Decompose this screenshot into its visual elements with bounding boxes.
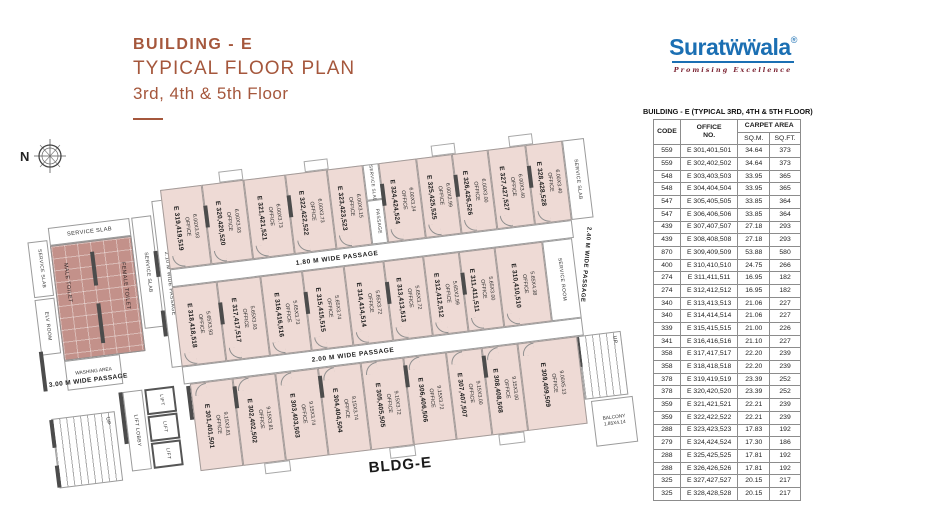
door-arc <box>500 214 513 227</box>
service-slab-label: SERVICE SLAB <box>67 226 113 238</box>
wall-segment <box>90 252 98 286</box>
up-label: UP <box>611 335 618 344</box>
office-label: E 323,423,523OFFICE6.00X3.15 <box>334 183 365 231</box>
passage-label: PASSAGE <box>373 209 382 235</box>
door-arc <box>507 312 520 325</box>
office-label: E 318,418,518OFFICE5.65X3.93 <box>184 300 215 348</box>
lift-room: LIFT <box>147 413 180 442</box>
lift-room: LIFT <box>151 439 184 468</box>
door-arc <box>237 378 250 391</box>
office-label: E 304,404,504OFFICE9.15X3.74 <box>329 385 360 433</box>
lift-room: LIFT <box>144 386 177 415</box>
office-label: E 312,412,512OFFICE5.65X2.99 <box>430 270 461 318</box>
door-arc <box>407 357 420 370</box>
office-label: E 320,420,520OFFICE6.00X3.93 <box>212 198 243 246</box>
office-label: E 310,410,510OFFICE5.65X4.38 <box>508 261 539 309</box>
office-label: E 303,403,503OFFICE9.15X3.74 <box>286 391 317 439</box>
door-arc <box>256 244 269 257</box>
male-toilet-label: MALE TOILET <box>61 263 73 304</box>
office-label: E 327,427,527OFFICE6.00X3.40 <box>496 163 527 211</box>
toilet-block: MALE TOILET FEMALE TOILET <box>50 236 146 361</box>
door-arc <box>272 341 285 354</box>
lift-label: LIFT <box>164 448 171 460</box>
door-arc <box>297 239 310 252</box>
service-slab-label: SERVICE SLAB <box>35 249 46 289</box>
brochure-page: BUILDING - E TYPICAL FLOOR PLAN 3rd, 4th… <box>0 0 945 525</box>
office-label: E 307,407,507OFFICE9.15X3.00 <box>454 370 485 418</box>
office-label: E 309,409,509OFFICE9.00X5.13 <box>537 360 568 408</box>
staircase-left: UP <box>51 411 123 488</box>
office-label: E 306,406,506OFFICE9.15X3.72 <box>414 375 445 423</box>
door-arc <box>464 219 477 232</box>
door-arc <box>471 317 484 330</box>
service-slab-label: SERVICE SLAB <box>142 251 153 292</box>
staircase-right: UP <box>577 331 628 400</box>
lift-label: LIFT <box>157 394 164 406</box>
wall-segment <box>39 351 48 391</box>
office-label: E 322,422,522OFFICE6.00X3.73 <box>295 188 326 236</box>
door-arc <box>365 362 378 375</box>
door-arc <box>486 347 499 360</box>
office-label: E 317,417,517OFFICE5.65X3.93 <box>228 295 259 343</box>
service-slab-label: SERVICE SLAB <box>572 158 583 199</box>
door-arc <box>229 346 242 359</box>
building-outline: SERVICE SLAB MALE TOILET FEMALE TOILET W… <box>21 128 708 525</box>
office-label: E 321,421,521OFFICE6.00X3.73 <box>254 193 285 241</box>
wall-segment <box>55 465 62 487</box>
door-arc <box>390 228 403 241</box>
door-arc <box>395 326 408 339</box>
door-arc <box>184 352 197 365</box>
door-arc <box>339 234 352 247</box>
floor-plan: SERVICE SLAB MALE TOILET FEMALE TOILET W… <box>0 0 945 525</box>
door-arc <box>356 331 369 344</box>
door-arc <box>172 255 185 268</box>
service-slab-label: SERVICE SLAB <box>368 165 378 202</box>
door-arc <box>428 223 441 236</box>
door-arc <box>279 372 292 385</box>
balcony: BALCONY1.85X4.14 <box>591 396 638 447</box>
wall-segment <box>49 420 56 448</box>
office-label: E 319,419,519OFFICE6.00X3.93 <box>170 203 201 251</box>
office-room: E 310,410,510OFFICE5.65X4.38 <box>495 242 552 327</box>
office-label: E 313,413,513OFFICE5.65X3.72 <box>393 275 424 323</box>
office-label: E 305,405,505OFFICE9.15X3.72 <box>372 380 403 428</box>
office-label: E 325,425,525OFFICE6.00X2.99 <box>423 172 454 220</box>
office-label: E 326,426,526OFFICE6.00X3.00 <box>459 168 490 216</box>
female-toilet-label: FEMALE TOILET <box>119 262 132 310</box>
service-room-label: SERVICE ROOM <box>556 258 568 302</box>
office-room: E 309,409,509OFFICE9.00X5.13 <box>517 336 587 431</box>
door-arc <box>537 210 550 223</box>
passage-2-40-label: 2.40 M WIDE PASSAGE <box>579 227 592 303</box>
door-arc <box>450 351 463 364</box>
door-arc <box>521 343 534 356</box>
office-label: E 302,402,502OFFICE9.15X3.81 <box>244 396 275 444</box>
lift-label: LIFT <box>160 421 167 433</box>
office-label: E 311,411,511OFFICE5.65X3.00 <box>466 266 497 313</box>
door-arc <box>322 367 335 380</box>
lift-lobby-label: LIFT LOBBY <box>132 414 142 447</box>
office-label: E 316,416,516OFFICE5.65X3.73 <box>271 290 302 338</box>
wall-segment <box>96 303 105 343</box>
office-label: E 324,424,524OFFICE6.00X3.24 <box>387 177 418 225</box>
office-label: E 314,414,514OFFICE5.65X3.72 <box>353 280 384 328</box>
office-label: E 315,415,515OFFICE5.65X3.74 <box>312 285 343 333</box>
up-label: UP <box>104 417 111 426</box>
office-label: E 308,408,508OFFICE9.15X3.00 <box>489 366 520 414</box>
door-arc <box>214 249 227 262</box>
office-label: E 328,428,528OFFICE6.00X3.40 <box>533 159 564 207</box>
door-arc <box>194 383 207 396</box>
door-arc <box>314 336 327 349</box>
elv-room-label: ELV ROOM <box>43 312 53 342</box>
office-label: E 301,401,501OFFICE9.15X3.81 <box>201 401 232 449</box>
door-arc <box>435 321 448 334</box>
